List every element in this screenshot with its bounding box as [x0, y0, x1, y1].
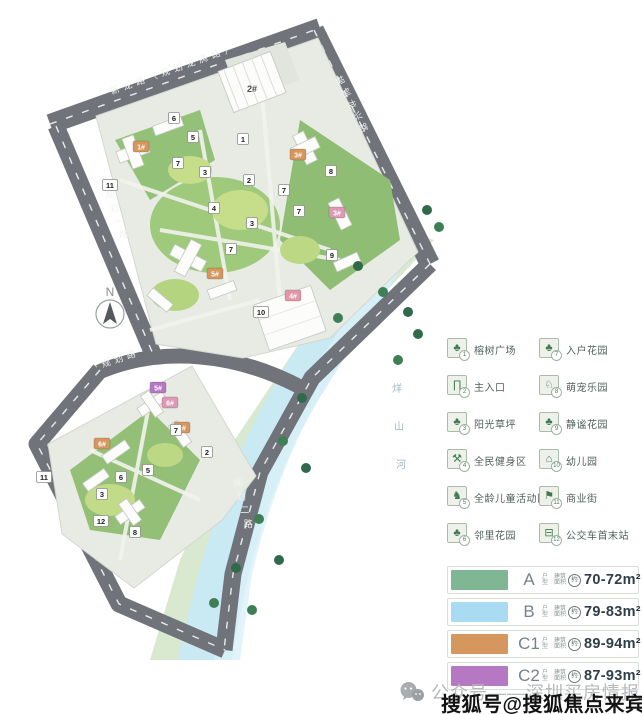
unit-color-swatch: [451, 602, 508, 622]
svg-text:山: 山: [394, 421, 404, 433]
entry-garden-icon: ♣ 7: [539, 338, 559, 358]
gate-icon: ∏ 2: [447, 375, 467, 395]
amenity-marker-12: 12: [94, 516, 109, 527]
svg-text:烊: 烊: [392, 382, 402, 395]
svg-text:10: 10: [257, 308, 265, 317]
building-tag: 5#: [150, 382, 166, 393]
legend-item-2: ∏ 2 主入口: [447, 375, 539, 412]
unit-area-value: 70-72m²: [584, 572, 641, 588]
amenity-label: 邻里花园: [474, 527, 516, 542]
svg-text:7: 7: [174, 426, 178, 435]
svg-text:1#: 1#: [137, 145, 145, 152]
unit-type-row-A: A 户 型 建筑 面积 约 70-72m²: [447, 566, 639, 594]
svg-text:6: 6: [172, 114, 176, 123]
unit-approx-label: 约: [568, 574, 581, 587]
amenity-number: 1: [459, 350, 470, 361]
unit-code: C1: [517, 634, 541, 654]
svg-text:N: N: [106, 285, 115, 299]
amenity-marker-7: 7: [226, 244, 237, 255]
svg-text:6: 6: [119, 473, 123, 482]
amenity-marker-11: 11: [103, 180, 118, 191]
amenity-marker-7: 7: [294, 206, 305, 217]
amenity-number: 12: [551, 535, 562, 546]
svg-text:3#: 3#: [294, 153, 302, 160]
amenity-marker-6: 6: [116, 472, 127, 483]
amenity-label: 公交车首末站: [566, 527, 629, 542]
amenity-number: 8: [551, 387, 562, 398]
amenity-number: 4: [459, 461, 470, 472]
amenity-marker-2: 2: [244, 175, 255, 186]
unit-approx-label: 约: [568, 606, 581, 619]
svg-text:一: 一: [115, 216, 124, 226]
legend-item-7: ♣ 7 入户花园: [539, 338, 642, 375]
svg-text:5: 5: [191, 133, 195, 142]
amenity-marker-10: 10: [254, 307, 269, 318]
amenity-number: 10: [551, 461, 562, 472]
unit-type-row-B: B 户 型 建筑 面积 约 79-83m²: [447, 598, 639, 626]
svg-text:6#: 6#: [98, 442, 106, 449]
amenity-label: 入户花园: [566, 342, 608, 357]
svg-text:规: 规: [233, 478, 242, 488]
page: N 新龙路（规划龙腾路）规划龙兴路规划一路规划路规划二路烊山河1#3#3#5#4…: [0, 0, 642, 714]
building-tag: 6#: [94, 438, 110, 449]
unit-type-label: 户 型: [542, 574, 548, 586]
legend-item-10: ⌂ 10 幼儿园: [539, 449, 642, 486]
shop-icon: ⚑ 11: [539, 486, 559, 506]
svg-text:4#: 4#: [289, 294, 297, 301]
amenity-marker-6: 6: [169, 113, 180, 124]
legend-item-8: ♘ 8 萌宠乐园: [539, 375, 642, 412]
amenity-marker-1: 1: [238, 134, 249, 145]
svg-text:划: 划: [237, 491, 246, 502]
amenity-marker-7: 7: [173, 158, 184, 169]
svg-text:3: 3: [203, 168, 207, 177]
legend-item-9: ♣ 9 静谧花园: [539, 412, 642, 449]
tree-icon: ♣ 1: [447, 338, 467, 358]
amenity-number: 9: [551, 424, 562, 435]
svg-text:5#: 5#: [154, 386, 162, 393]
amenity-marker-8: 8: [130, 527, 141, 538]
legend-item-4: ⚒ 4 全民健身区: [447, 449, 539, 486]
svg-text:二: 二: [240, 505, 249, 515]
svg-text:2: 2: [205, 448, 209, 457]
svg-text:5#: 5#: [211, 272, 219, 279]
building-tag: 1#: [133, 141, 149, 152]
svg-text:9: 9: [330, 251, 334, 260]
svg-text:11: 11: [106, 181, 114, 190]
svg-text:路: 路: [119, 229, 128, 240]
svg-text:6#: 6#: [166, 401, 174, 408]
building-tag: 3#: [329, 207, 345, 218]
building-tag: 3#: [290, 149, 306, 160]
amenity-label: 商业街: [566, 490, 598, 505]
svg-text:7: 7: [282, 186, 286, 195]
amenity-marker-8: 8: [326, 166, 337, 177]
unit-area-prefix: 建筑 面积: [554, 606, 566, 618]
building-tag: 4#: [285, 290, 301, 301]
svg-text:8: 8: [133, 528, 137, 537]
unit-area-value: 89-94m²: [584, 636, 641, 652]
amenity-number: 5: [459, 498, 470, 509]
wechat-icon: [399, 681, 425, 703]
svg-text:3#: 3#: [333, 211, 341, 218]
amenity-label: 主入口: [474, 379, 506, 394]
svg-text:7: 7: [176, 159, 180, 168]
unit-code: A: [517, 570, 541, 590]
svg-text:路: 路: [244, 518, 253, 529]
amenity-label: 全民健身区: [474, 453, 527, 468]
amenity-marker-3: 3: [97, 489, 108, 500]
amenity-marker-9: 9: [327, 250, 338, 261]
amenity-number: 2: [459, 387, 470, 398]
amenity-label: 榕树广场: [474, 342, 516, 357]
amenity-marker-7: 7: [171, 425, 182, 436]
building-label: 2#: [247, 84, 257, 94]
svg-text:2: 2: [247, 176, 251, 185]
unit-area-prefix: 建筑 面积: [554, 574, 566, 586]
svg-text:7: 7: [229, 245, 233, 254]
legend-item-5: ♞ 5 全龄儿童活动区: [447, 486, 539, 523]
svg-text:11: 11: [40, 473, 48, 482]
amenity-marker-11: 11: [37, 472, 52, 483]
unit-type-legend: A 户 型 建筑 面积 约 70-72m² B 户 型 建筑 面积 约 79-8…: [447, 566, 639, 694]
amenity-label: 静谧花园: [566, 416, 608, 431]
legend-item-6: ♣ 6 邻里花园: [447, 523, 539, 560]
amenity-marker-3: 3: [200, 167, 211, 178]
svg-text:8: 8: [329, 167, 333, 176]
svg-text:划: 划: [110, 202, 119, 213]
amenity-marker-5: 5: [143, 465, 154, 476]
svg-text:河: 河: [396, 459, 406, 471]
building-tag: 5#: [207, 268, 223, 279]
svg-text:7: 7: [297, 207, 301, 216]
garden-icon: ♣ 6: [447, 523, 467, 543]
legend-item-3: ♣ 3 阳光草坪: [447, 412, 539, 449]
amenity-number: 11: [551, 498, 562, 509]
amenity-number: 7: [551, 350, 562, 361]
unit-type-label: 户 型: [542, 638, 548, 650]
amenity-marker-4: 4: [209, 203, 220, 214]
unit-type-row-C1: C1 户 型 建筑 面积 约 89-94m²: [447, 630, 639, 658]
svg-text:规: 规: [105, 190, 114, 200]
unit-code: B: [517, 602, 541, 622]
legend-item-1: ♣ 1 榕树广场: [447, 338, 539, 375]
amenity-label: 阳光草坪: [474, 416, 516, 431]
svg-text:1: 1: [241, 135, 245, 144]
unit-type-label: 户 型: [542, 606, 548, 618]
bus-icon: ⊟ 12: [539, 523, 559, 543]
svg-text:3: 3: [100, 490, 104, 499]
quiet-garden-icon: ♣ 9: [539, 412, 559, 432]
amenity-label: 幼儿园: [566, 453, 598, 468]
amenity-marker-3: 3: [247, 218, 258, 229]
kindergarten-icon: ⌂ 10: [539, 449, 559, 469]
river-label: 烊山河: [392, 382, 406, 471]
building-tag: 6#: [162, 397, 178, 408]
lawn-icon: ♣ 3: [447, 412, 467, 432]
svg-text:12: 12: [97, 517, 105, 526]
amenity-legend: ♣ 1 榕树广场 ∏ 2 主入口 ♣ 3 阳光草坪 ⚒ 4 全民: [447, 338, 642, 560]
amenity-marker-7: 7: [279, 185, 290, 196]
sohu-watermark: 搜狐号@搜狐焦点来宾站: [441, 688, 642, 714]
amenity-marker-2: 2: [202, 447, 213, 458]
unit-color-swatch: [451, 634, 508, 654]
fitness-icon: ⚒ 4: [447, 449, 467, 469]
svg-text:3: 3: [250, 219, 254, 228]
amenity-number: 3: [459, 424, 470, 435]
amenity-label: 萌宠乐园: [566, 379, 608, 394]
unit-approx-label: 约: [568, 638, 581, 651]
legend-item-11: ⚑ 11 商业街: [539, 486, 642, 523]
amenity-number: 6: [459, 535, 470, 546]
unit-color-swatch: [451, 570, 508, 590]
pet-icon: ♘ 8: [539, 375, 559, 395]
amenity-label: 全龄儿童活动区: [474, 490, 548, 505]
children-play-icon: ♞ 5: [447, 486, 467, 506]
svg-text:5: 5: [146, 466, 150, 475]
unit-area-prefix: 建筑 面积: [554, 638, 566, 650]
unit-area-value: 79-83m²: [584, 604, 641, 620]
amenity-marker-5: 5: [188, 132, 199, 143]
legend-item-12: ⊟ 12 公交车首末站: [539, 523, 642, 560]
